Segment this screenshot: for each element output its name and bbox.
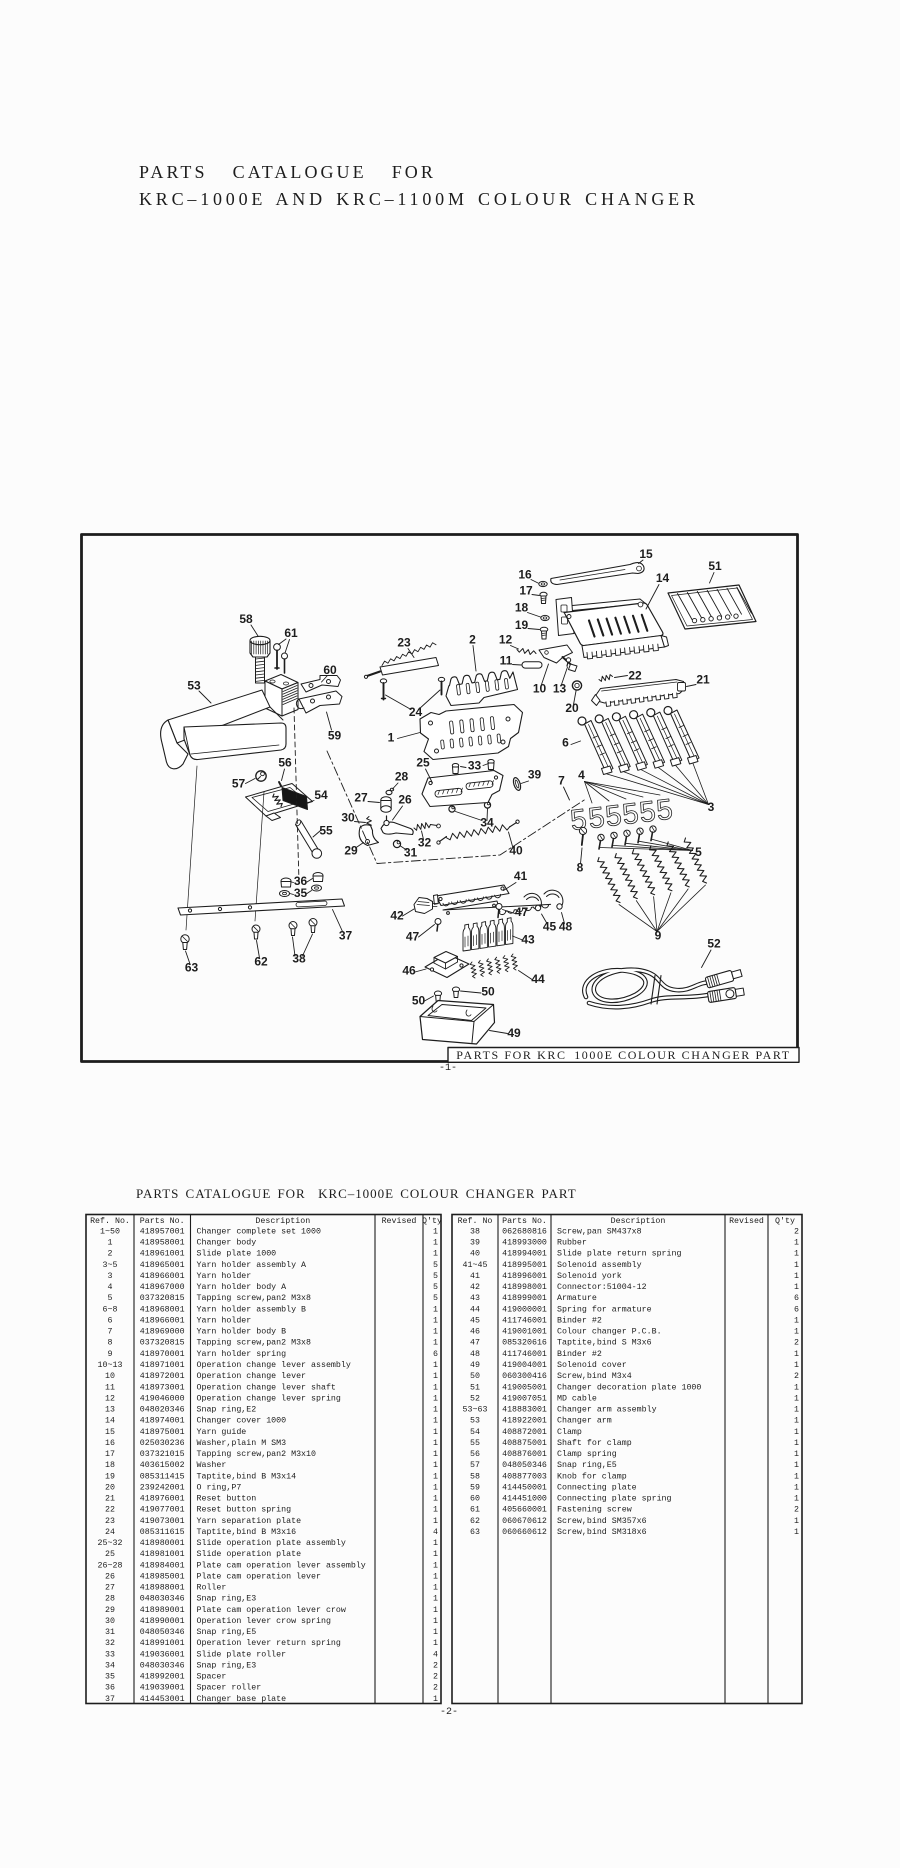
svg-text:7: 7 bbox=[108, 1328, 113, 1337]
svg-text:418922001: 418922001 bbox=[502, 1417, 547, 1426]
svg-text:1: 1 bbox=[433, 1417, 438, 1426]
svg-text:Solenoid york: Solenoid york bbox=[557, 1271, 622, 1281]
svg-text:36: 36 bbox=[105, 1684, 115, 1693]
svg-text:32: 32 bbox=[105, 1639, 115, 1648]
svg-text:414451000: 414451000 bbox=[502, 1495, 547, 1504]
svg-text:Description: Description bbox=[611, 1216, 666, 1226]
svg-text:419039001: 419039001 bbox=[140, 1684, 185, 1693]
svg-text:38: 38 bbox=[470, 1228, 480, 1237]
svg-text:10: 10 bbox=[105, 1372, 115, 1381]
svg-text:1: 1 bbox=[433, 1305, 438, 1314]
svg-text:42: 42 bbox=[470, 1283, 480, 1292]
svg-text:1: 1 bbox=[433, 1361, 438, 1370]
svg-text:1: 1 bbox=[433, 1461, 438, 1470]
svg-text:1: 1 bbox=[794, 1483, 799, 1492]
svg-text:Ref. No: Ref. No bbox=[458, 1216, 493, 1226]
svg-text:Q'ty: Q'ty bbox=[775, 1216, 795, 1226]
svg-text:060300416: 060300416 bbox=[502, 1372, 547, 1381]
svg-text:4: 4 bbox=[108, 1283, 113, 1292]
svg-text:418993000: 418993000 bbox=[502, 1239, 547, 1248]
svg-text:Ref. No.: Ref. No. bbox=[90, 1216, 130, 1226]
svg-text:419036001: 419036001 bbox=[140, 1650, 185, 1659]
svg-text:1: 1 bbox=[794, 1239, 799, 1248]
svg-text:085311615: 085311615 bbox=[140, 1528, 185, 1537]
svg-text:44: 44 bbox=[470, 1305, 480, 1314]
svg-text:Knob for clamp: Knob for clamp bbox=[557, 1471, 627, 1481]
svg-text:58: 58 bbox=[470, 1472, 480, 1481]
svg-text:418965001: 418965001 bbox=[140, 1261, 185, 1270]
svg-text:Screw,pan SM437x8: Screw,pan SM437x8 bbox=[557, 1228, 642, 1237]
svg-text:19: 19 bbox=[105, 1472, 115, 1481]
svg-text:1: 1 bbox=[433, 1450, 438, 1459]
svg-text:Clamp: Clamp bbox=[557, 1427, 582, 1437]
svg-text:Spacer roller: Spacer roller bbox=[197, 1683, 262, 1693]
svg-text:4: 4 bbox=[433, 1528, 438, 1537]
svg-text:Snap ring,E3: Snap ring,E3 bbox=[197, 1661, 257, 1671]
svg-text:40: 40 bbox=[470, 1250, 480, 1259]
svg-text:1: 1 bbox=[794, 1450, 799, 1459]
svg-text:239242001: 239242001 bbox=[140, 1483, 185, 1492]
svg-text:1: 1 bbox=[433, 1483, 438, 1492]
svg-text:419007051: 419007051 bbox=[502, 1394, 547, 1403]
svg-text:Operation change lever shaft: Operation change lever shaft bbox=[197, 1382, 336, 1392]
svg-text:6: 6 bbox=[794, 1294, 799, 1303]
svg-text:418988001: 418988001 bbox=[140, 1584, 185, 1593]
svg-text:1: 1 bbox=[433, 1572, 438, 1581]
svg-text:Slide plate return spring: Slide plate return spring bbox=[557, 1249, 681, 1259]
svg-text:Tapping screw,pan2 M3x8: Tapping screw,pan2 M3x8 bbox=[197, 1293, 312, 1303]
svg-text:28: 28 bbox=[105, 1595, 115, 1604]
svg-text:6~8: 6~8 bbox=[103, 1305, 118, 1314]
svg-text:408875001: 408875001 bbox=[502, 1439, 547, 1448]
svg-text:1: 1 bbox=[433, 1317, 438, 1326]
svg-text:49: 49 bbox=[470, 1361, 480, 1370]
svg-text:Armature: Armature bbox=[557, 1294, 597, 1303]
svg-text:20: 20 bbox=[105, 1483, 115, 1492]
svg-text:41: 41 bbox=[470, 1272, 480, 1281]
svg-text:418967000: 418967000 bbox=[140, 1283, 185, 1292]
svg-text:418957001: 418957001 bbox=[140, 1228, 185, 1237]
svg-text:1: 1 bbox=[794, 1417, 799, 1426]
svg-text:5: 5 bbox=[108, 1294, 113, 1303]
svg-text:52: 52 bbox=[470, 1394, 480, 1403]
svg-text:29: 29 bbox=[105, 1606, 115, 1615]
svg-text:14: 14 bbox=[105, 1417, 115, 1426]
svg-text:085311415: 085311415 bbox=[140, 1472, 185, 1481]
svg-text:418998001: 418998001 bbox=[502, 1283, 547, 1292]
svg-text:Changer decoration plate 1000: Changer decoration plate 1000 bbox=[557, 1382, 701, 1392]
svg-text:Parts No.: Parts No. bbox=[140, 1217, 185, 1226]
svg-text:1: 1 bbox=[433, 1495, 438, 1504]
svg-text:418984001: 418984001 bbox=[140, 1561, 185, 1570]
svg-text:418999001: 418999001 bbox=[502, 1294, 547, 1303]
svg-text:26~28: 26~28 bbox=[98, 1561, 123, 1570]
svg-text:1: 1 bbox=[794, 1517, 799, 1526]
svg-text:16: 16 bbox=[105, 1439, 115, 1448]
svg-text:418883001: 418883001 bbox=[502, 1406, 547, 1415]
svg-text:1: 1 bbox=[794, 1250, 799, 1259]
svg-text:34: 34 bbox=[105, 1662, 115, 1671]
svg-text:21: 21 bbox=[105, 1495, 115, 1504]
svg-text:Description: Description bbox=[255, 1216, 310, 1226]
svg-text:419000001: 419000001 bbox=[502, 1305, 547, 1314]
svg-text:30: 30 bbox=[105, 1617, 115, 1626]
svg-text:408876001: 408876001 bbox=[502, 1450, 547, 1459]
svg-text:1: 1 bbox=[794, 1361, 799, 1370]
svg-text:419001001: 419001001 bbox=[502, 1328, 547, 1337]
svg-text:418972001: 418972001 bbox=[140, 1372, 185, 1381]
svg-text:Screw,bind SM357x6: Screw,bind SM357x6 bbox=[557, 1516, 647, 1526]
svg-text:1: 1 bbox=[794, 1383, 799, 1392]
svg-text:418980001: 418980001 bbox=[140, 1539, 185, 1548]
svg-text:33: 33 bbox=[105, 1650, 115, 1659]
svg-text:Colour changer P.C.B.: Colour changer P.C.B. bbox=[557, 1327, 662, 1337]
svg-text:1: 1 bbox=[433, 1239, 438, 1248]
svg-text:1: 1 bbox=[794, 1495, 799, 1504]
svg-text:Snap ring,E3: Snap ring,E3 bbox=[197, 1594, 257, 1604]
svg-text:1: 1 bbox=[433, 1584, 438, 1593]
svg-text:418961001: 418961001 bbox=[140, 1250, 185, 1259]
svg-text:048050346: 048050346 bbox=[502, 1461, 547, 1470]
svg-text:408872001: 408872001 bbox=[502, 1428, 547, 1437]
svg-text:1: 1 bbox=[794, 1428, 799, 1437]
svg-text:5: 5 bbox=[433, 1261, 438, 1270]
svg-text:2: 2 bbox=[794, 1228, 799, 1237]
svg-text:Operation change lever: Operation change lever bbox=[197, 1371, 307, 1381]
svg-text:1: 1 bbox=[433, 1617, 438, 1626]
svg-text:35: 35 bbox=[105, 1673, 115, 1682]
svg-text:Plate cam operation lever asse: Plate cam operation lever assembly bbox=[197, 1560, 366, 1570]
svg-text:9: 9 bbox=[108, 1350, 113, 1359]
svg-text:27: 27 bbox=[105, 1584, 115, 1593]
svg-text:53~63: 53~63 bbox=[463, 1406, 488, 1415]
svg-text:25~32: 25~32 bbox=[98, 1539, 123, 1548]
svg-text:5: 5 bbox=[433, 1294, 438, 1303]
svg-text:2: 2 bbox=[433, 1662, 438, 1671]
svg-text:1: 1 bbox=[433, 1606, 438, 1615]
svg-text:1~50: 1~50 bbox=[100, 1228, 120, 1237]
svg-text:6: 6 bbox=[794, 1305, 799, 1314]
svg-text:048020346: 048020346 bbox=[140, 1406, 185, 1415]
svg-text:037320815: 037320815 bbox=[140, 1339, 185, 1348]
svg-text:51: 51 bbox=[470, 1383, 480, 1392]
svg-text:419073001: 419073001 bbox=[140, 1517, 185, 1526]
svg-text:1: 1 bbox=[433, 1250, 438, 1259]
svg-text:12: 12 bbox=[105, 1394, 115, 1403]
svg-text:418985001: 418985001 bbox=[140, 1572, 185, 1581]
svg-text:Shaft for clamp: Shaft for clamp bbox=[557, 1438, 632, 1448]
svg-text:411746001: 411746001 bbox=[502, 1350, 547, 1359]
svg-text:Connecting plate: Connecting plate bbox=[557, 1482, 637, 1492]
svg-text:418971001: 418971001 bbox=[140, 1361, 185, 1370]
svg-text:47: 47 bbox=[470, 1339, 480, 1348]
svg-text:63: 63 bbox=[470, 1528, 480, 1537]
svg-text:3: 3 bbox=[108, 1272, 113, 1281]
svg-text:060670612: 060670612 bbox=[502, 1517, 547, 1526]
svg-text:1: 1 bbox=[433, 1372, 438, 1381]
svg-text:1: 1 bbox=[794, 1350, 799, 1359]
svg-text:418992001: 418992001 bbox=[140, 1673, 185, 1682]
svg-text:45: 45 bbox=[470, 1317, 480, 1326]
svg-text:Slide operation plate assembly: Slide operation plate assembly bbox=[197, 1538, 346, 1548]
svg-text:Connector:51004-12: Connector:51004-12 bbox=[557, 1283, 647, 1292]
svg-text:59: 59 bbox=[470, 1483, 480, 1492]
svg-text:Fastening screw: Fastening screw bbox=[557, 1505, 632, 1515]
svg-text:1: 1 bbox=[433, 1472, 438, 1481]
svg-text:Revised: Revised bbox=[382, 1216, 417, 1226]
svg-text:418970001: 418970001 bbox=[140, 1350, 185, 1359]
svg-text:26: 26 bbox=[105, 1572, 115, 1581]
svg-text:418974001: 418974001 bbox=[140, 1417, 185, 1426]
svg-text:418981001: 418981001 bbox=[140, 1550, 185, 1559]
svg-text:1: 1 bbox=[433, 1328, 438, 1337]
svg-text:Revised: Revised bbox=[729, 1216, 764, 1226]
svg-text:418958001: 418958001 bbox=[140, 1239, 185, 1248]
svg-text:37: 37 bbox=[105, 1695, 115, 1704]
svg-text:3~5: 3~5 bbox=[103, 1261, 118, 1270]
svg-text:31: 31 bbox=[105, 1628, 115, 1637]
svg-text:419005001: 419005001 bbox=[502, 1383, 547, 1392]
svg-text:57: 57 bbox=[470, 1461, 480, 1470]
svg-text:Yarn holder assembly A: Yarn holder assembly A bbox=[197, 1260, 307, 1270]
svg-text:418995001: 418995001 bbox=[502, 1261, 547, 1270]
svg-text:Operation lever return spring: Operation lever return spring bbox=[197, 1638, 341, 1648]
svg-text:1: 1 bbox=[794, 1394, 799, 1403]
svg-text:13: 13 bbox=[105, 1406, 115, 1415]
svg-text:23: 23 bbox=[105, 1517, 115, 1526]
svg-text:Taptite,bind S M3x6: Taptite,bind S M3x6 bbox=[557, 1338, 652, 1348]
svg-text:Tapping screw,pan2 M3x8: Tapping screw,pan2 M3x8 bbox=[197, 1338, 312, 1348]
svg-text:Reset button: Reset button bbox=[197, 1494, 257, 1504]
svg-text:18: 18 bbox=[105, 1461, 115, 1470]
svg-text:62: 62 bbox=[470, 1517, 480, 1526]
svg-text:56: 56 bbox=[470, 1450, 480, 1459]
svg-text:Roller: Roller bbox=[197, 1583, 227, 1593]
svg-text:1: 1 bbox=[794, 1461, 799, 1470]
svg-text:46: 46 bbox=[470, 1328, 480, 1337]
svg-text:Plate cam operation lever: Plate cam operation lever bbox=[197, 1571, 321, 1581]
svg-text:Taptite,bind B M3x16: Taptite,bind B M3x16 bbox=[197, 1527, 297, 1537]
svg-text:Changer body: Changer body bbox=[197, 1238, 257, 1248]
svg-text:418976001: 418976001 bbox=[140, 1495, 185, 1504]
svg-text:1: 1 bbox=[433, 1517, 438, 1526]
svg-text:Snap ring,E2: Snap ring,E2 bbox=[197, 1405, 257, 1415]
svg-text:025030236: 025030236 bbox=[140, 1439, 185, 1448]
svg-text:Washer: Washer bbox=[197, 1460, 227, 1470]
svg-text:Clamp spring: Clamp spring bbox=[557, 1449, 617, 1459]
svg-text:1: 1 bbox=[794, 1283, 799, 1292]
svg-text:43: 43 bbox=[470, 1294, 480, 1303]
svg-text:Changer complete set 1000: Changer complete set 1000 bbox=[197, 1227, 321, 1237]
svg-text:Operation change lever assembl: Operation change lever assembly bbox=[197, 1360, 351, 1370]
svg-text:Spacer: Spacer bbox=[197, 1673, 227, 1682]
svg-text:Slide plate roller: Slide plate roller bbox=[197, 1649, 287, 1659]
svg-text:Changer cover 1000: Changer cover 1000 bbox=[197, 1416, 287, 1426]
svg-text:Slide operation plate: Slide operation plate bbox=[197, 1549, 302, 1559]
svg-text:085320616: 085320616 bbox=[502, 1339, 547, 1348]
svg-text:419077001: 419077001 bbox=[140, 1506, 185, 1515]
svg-text:2: 2 bbox=[433, 1673, 438, 1682]
svg-text:Changer base plate: Changer base plate bbox=[197, 1694, 287, 1704]
svg-text:Screw,bind M3x4: Screw,bind M3x4 bbox=[557, 1371, 632, 1381]
svg-text:60: 60 bbox=[470, 1495, 480, 1504]
svg-text:Slide plate 1000: Slide plate 1000 bbox=[197, 1249, 277, 1259]
svg-text:2: 2 bbox=[794, 1506, 799, 1515]
svg-text:5: 5 bbox=[433, 1283, 438, 1292]
svg-text:1: 1 bbox=[433, 1550, 438, 1559]
svg-text:Taptite,bind B M3x14: Taptite,bind B M3x14 bbox=[197, 1471, 297, 1481]
svg-text:Connecting plate spring: Connecting plate spring bbox=[557, 1494, 672, 1504]
svg-text:17: 17 bbox=[105, 1450, 115, 1459]
svg-text:Solenoid assembly: Solenoid assembly bbox=[557, 1260, 642, 1270]
svg-text:Operation lever crow spring: Operation lever crow spring bbox=[197, 1616, 331, 1626]
svg-text:411746001: 411746001 bbox=[502, 1317, 547, 1326]
svg-text:1: 1 bbox=[433, 1439, 438, 1448]
svg-text:Parts No.: Parts No. bbox=[502, 1217, 547, 1226]
svg-text:5: 5 bbox=[433, 1272, 438, 1281]
svg-text:037320815: 037320815 bbox=[140, 1294, 185, 1303]
svg-text:41~45: 41~45 bbox=[463, 1261, 488, 1270]
svg-text:403615002: 403615002 bbox=[140, 1461, 185, 1470]
svg-text:048030346: 048030346 bbox=[140, 1595, 185, 1604]
svg-text:1: 1 bbox=[433, 1394, 438, 1403]
svg-text:11: 11 bbox=[105, 1383, 115, 1392]
svg-text:Plate cam operation lever crow: Plate cam operation lever crow bbox=[197, 1605, 346, 1615]
svg-text:418994001: 418994001 bbox=[502, 1250, 547, 1259]
svg-text:418989001: 418989001 bbox=[140, 1606, 185, 1615]
svg-text:Changer arm: Changer arm bbox=[557, 1416, 612, 1426]
svg-text:419004001: 419004001 bbox=[502, 1361, 547, 1370]
svg-text:Operation change lever spring: Operation change lever spring bbox=[197, 1393, 341, 1403]
svg-text:418968001: 418968001 bbox=[140, 1305, 185, 1314]
svg-text:1: 1 bbox=[794, 1261, 799, 1270]
svg-text:55: 55 bbox=[470, 1439, 480, 1448]
svg-text:405660001: 405660001 bbox=[502, 1506, 547, 1515]
svg-text:1: 1 bbox=[433, 1506, 438, 1515]
svg-text:2: 2 bbox=[794, 1339, 799, 1348]
svg-text:Screw,bind SM318x6: Screw,bind SM318x6 bbox=[557, 1527, 647, 1537]
svg-text:48: 48 bbox=[470, 1350, 480, 1359]
svg-text:1: 1 bbox=[794, 1328, 799, 1337]
svg-text:418996001: 418996001 bbox=[502, 1272, 547, 1281]
svg-text:61: 61 bbox=[470, 1506, 480, 1515]
svg-text:O ring,P7: O ring,P7 bbox=[197, 1482, 242, 1492]
svg-text:418975001: 418975001 bbox=[140, 1428, 185, 1437]
svg-text:10~13: 10~13 bbox=[98, 1361, 123, 1370]
svg-text:1: 1 bbox=[794, 1472, 799, 1481]
svg-text:Yarn holder body A: Yarn holder body A bbox=[197, 1282, 287, 1292]
svg-text:1: 1 bbox=[433, 1428, 438, 1437]
svg-text:414450001: 414450001 bbox=[502, 1483, 547, 1492]
svg-text:1: 1 bbox=[794, 1272, 799, 1281]
svg-text:1: 1 bbox=[433, 1539, 438, 1548]
svg-text:418966001: 418966001 bbox=[140, 1272, 185, 1281]
svg-text:Changer arm assembly: Changer arm assembly bbox=[557, 1405, 657, 1415]
svg-text:418966001: 418966001 bbox=[140, 1317, 185, 1326]
svg-text:1: 1 bbox=[433, 1595, 438, 1604]
svg-text:1: 1 bbox=[794, 1406, 799, 1415]
svg-text:1: 1 bbox=[794, 1317, 799, 1326]
svg-text:6: 6 bbox=[108, 1317, 113, 1326]
svg-text:418991001: 418991001 bbox=[140, 1639, 185, 1648]
svg-text:060660612: 060660612 bbox=[502, 1528, 547, 1537]
svg-text:2: 2 bbox=[108, 1250, 113, 1259]
svg-text:15: 15 bbox=[105, 1428, 115, 1437]
svg-text:Yarn separation plate: Yarn separation plate bbox=[197, 1516, 302, 1526]
svg-text:Binder #2: Binder #2 bbox=[557, 1349, 602, 1359]
svg-text:Tapping screw,pan2 M3x10: Tapping screw,pan2 M3x10 bbox=[197, 1449, 317, 1459]
svg-text:1: 1 bbox=[433, 1639, 438, 1648]
svg-text:418990001: 418990001 bbox=[140, 1617, 185, 1626]
svg-text:Yarn guide: Yarn guide bbox=[197, 1427, 247, 1437]
svg-text:Washer,plain M SM3: Washer,plain M SM3 bbox=[197, 1438, 287, 1448]
svg-text:MD cable: MD cable bbox=[557, 1393, 597, 1403]
svg-text:Spring for armature: Spring for armature bbox=[557, 1304, 652, 1314]
svg-text:408877003: 408877003 bbox=[502, 1472, 547, 1481]
svg-text:24: 24 bbox=[105, 1528, 115, 1537]
svg-text:048030346: 048030346 bbox=[140, 1662, 185, 1671]
svg-text:1: 1 bbox=[794, 1528, 799, 1537]
svg-text:Yarn holder: Yarn holder bbox=[197, 1271, 252, 1281]
svg-text:1: 1 bbox=[433, 1561, 438, 1570]
svg-text:418969000: 418969000 bbox=[140, 1328, 185, 1337]
svg-text:Snap ring,E5: Snap ring,E5 bbox=[557, 1460, 617, 1470]
svg-text:39: 39 bbox=[470, 1239, 480, 1248]
svg-text:Yarn holder spring: Yarn holder spring bbox=[197, 1349, 287, 1359]
svg-text:419046000: 419046000 bbox=[140, 1394, 185, 1403]
svg-text:Q'ty: Q'ty bbox=[422, 1216, 442, 1226]
svg-text:1: 1 bbox=[433, 1695, 438, 1704]
svg-text:53: 53 bbox=[470, 1417, 480, 1426]
svg-text:414453001: 414453001 bbox=[140, 1695, 185, 1704]
svg-text:1: 1 bbox=[433, 1228, 438, 1237]
svg-text:1: 1 bbox=[433, 1406, 438, 1415]
svg-text:1: 1 bbox=[433, 1339, 438, 1348]
svg-text:418973001: 418973001 bbox=[140, 1383, 185, 1392]
svg-text:1: 1 bbox=[433, 1383, 438, 1392]
svg-text:50: 50 bbox=[470, 1372, 480, 1381]
svg-text:Yarn holder assembly B: Yarn holder assembly B bbox=[197, 1304, 307, 1314]
svg-text:Yarn holder: Yarn holder bbox=[197, 1316, 252, 1326]
svg-text:Yarn holder body B: Yarn holder body B bbox=[197, 1327, 287, 1337]
svg-text:062680816: 062680816 bbox=[502, 1228, 547, 1237]
svg-text:4: 4 bbox=[433, 1650, 438, 1659]
svg-text:037321015: 037321015 bbox=[140, 1450, 185, 1459]
svg-text:Snap ring,E5: Snap ring,E5 bbox=[197, 1627, 257, 1637]
svg-text:Reset button spring: Reset button spring bbox=[197, 1505, 292, 1515]
svg-text:25: 25 bbox=[105, 1550, 115, 1559]
svg-text:54: 54 bbox=[470, 1428, 480, 1437]
svg-text:1: 1 bbox=[794, 1439, 799, 1448]
svg-text:048050346: 048050346 bbox=[140, 1628, 185, 1637]
svg-text:Solenoid cover: Solenoid cover bbox=[557, 1360, 627, 1370]
svg-text:1: 1 bbox=[108, 1239, 113, 1248]
svg-text:1: 1 bbox=[433, 1628, 438, 1637]
svg-text:Binder #2: Binder #2 bbox=[557, 1316, 602, 1326]
svg-text:Rubber: Rubber bbox=[557, 1238, 587, 1248]
svg-text:2: 2 bbox=[794, 1372, 799, 1381]
svg-text:2: 2 bbox=[433, 1684, 438, 1693]
svg-text:22: 22 bbox=[105, 1506, 115, 1515]
svg-text:6: 6 bbox=[433, 1350, 438, 1359]
svg-text:8: 8 bbox=[108, 1339, 113, 1348]
